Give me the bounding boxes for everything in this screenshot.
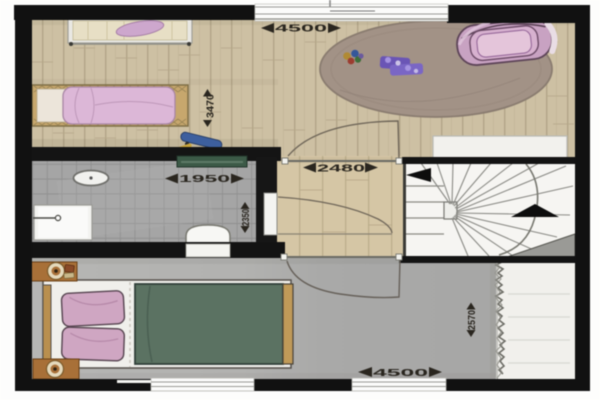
svg-text:3470: 3470 (205, 94, 217, 118)
svg-text:2350: 2350 (240, 209, 252, 226)
svg-text:1950: 1950 (179, 173, 230, 185)
svg-text:4500: 4500 (275, 23, 327, 35)
svg-text:2570: 2570 (466, 310, 478, 330)
svg-text:4500: 4500 (373, 367, 428, 379)
svg-text:2480: 2480 (317, 163, 365, 175)
